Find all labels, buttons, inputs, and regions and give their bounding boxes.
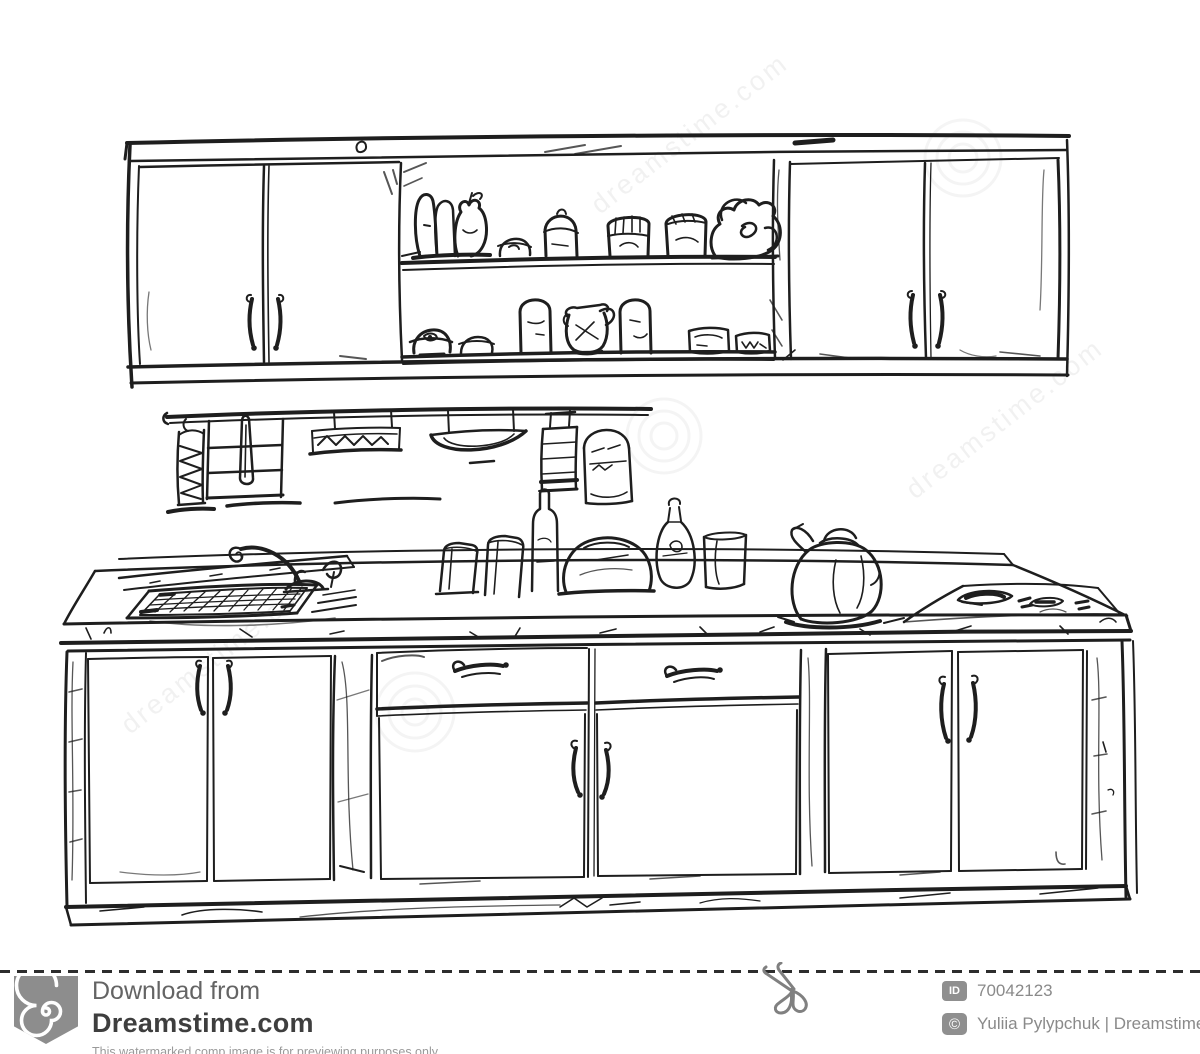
- glasses: [436, 536, 523, 597]
- hanging-bowl: [431, 409, 526, 463]
- divider-stile: [333, 655, 372, 880]
- watermarked-stock-image: dreamstime.com dreamstime.com dreamstime…: [0, 0, 1200, 1054]
- towel-holder: [207, 416, 300, 506]
- image-meta-block: ID 70042123 © Yuliia Pylypchuk | Dreamst…: [942, 981, 1200, 1047]
- drawer-handle: [665, 667, 723, 682]
- covered-dish: [559, 538, 654, 594]
- countertop: [61, 490, 1131, 644]
- download-block: Download from Dreamstime.com This waterm…: [92, 977, 441, 1054]
- download-from-label: Download from: [92, 977, 441, 1006]
- image-id-row: ID 70042123: [942, 981, 1200, 1001]
- drawer-unit-right: [596, 667, 799, 876]
- drawer-handle: [453, 662, 509, 677]
- brand-name: Dreamstime.com: [92, 1008, 441, 1039]
- cutting-board: [584, 430, 632, 504]
- spiral-ghost-icon: [925, 120, 1001, 196]
- teapot: [711, 200, 780, 259]
- base-cabinets: [65, 640, 1137, 925]
- shelf-dishes-bottom-row: [410, 300, 770, 355]
- door-handle: [571, 741, 582, 798]
- kettle: [778, 524, 904, 628]
- dashed-cut-line: [0, 970, 1200, 973]
- center-divider-inner: [594, 649, 595, 876]
- carafe: [657, 498, 695, 587]
- spiral-ghost-icon: [376, 673, 454, 751]
- wall-rail: [163, 408, 651, 512]
- dreamstime-logo: [14, 976, 78, 1044]
- kitchen-sketch-svg: dreamstime.com dreamstime.com dreamstime…: [0, 0, 1200, 960]
- hanging-canister: [541, 411, 577, 491]
- base-doors-right: [828, 650, 1083, 873]
- image-id: 70042123: [977, 981, 1053, 1001]
- right-end-panel: [1086, 641, 1137, 897]
- credit-line: Yuliia Pylypchuk | Dreamstime.com: [977, 1014, 1200, 1034]
- disclaimer: This watermarked comp image is for previ…: [92, 1045, 441, 1054]
- upper-right-doors: [783, 140, 1069, 376]
- kitchen-sketch: dreamstime.com dreamstime.com dreamstime…: [0, 0, 1200, 960]
- center-divider: [588, 649, 589, 877]
- door-handle: [247, 295, 284, 351]
- utensil-tray: [310, 410, 440, 503]
- pitcher: [564, 304, 614, 354]
- id-badge: ID: [942, 981, 967, 1001]
- credit-row: © Yuliia Pylypchuk | Dreamstime.com: [942, 1013, 1200, 1035]
- divider-stile: [800, 649, 826, 874]
- door-handle: [599, 743, 610, 800]
- drawer-unit-left: [377, 648, 587, 879]
- scissors-icon: [754, 962, 826, 1020]
- copyright-badge: ©: [942, 1013, 967, 1035]
- left-end-panel: [65, 652, 86, 906]
- watermark-footer: Download from Dreamstime.com This waterm…: [0, 968, 1200, 1054]
- bottle: [532, 490, 558, 592]
- dreamstime-spiral-icon: [14, 976, 78, 1044]
- base-doors-left: [88, 656, 331, 883]
